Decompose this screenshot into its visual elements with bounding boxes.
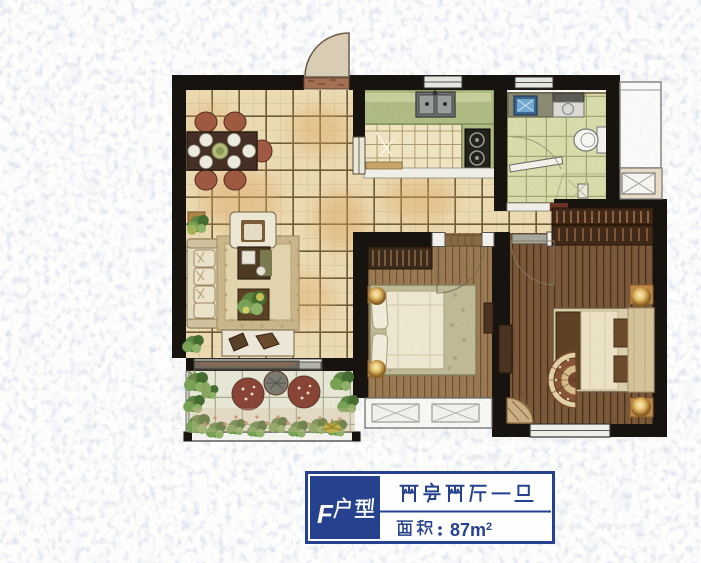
svg-text:87m2: 87m2: [450, 520, 492, 540]
svg-text:F: F: [317, 499, 334, 529]
